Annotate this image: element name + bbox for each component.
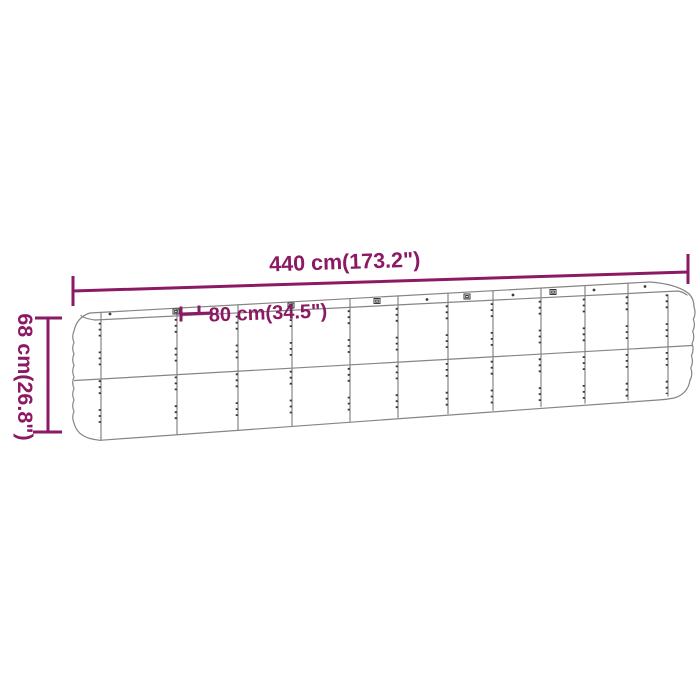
- bed-left-edge-corrugated: [73, 331, 74, 423]
- rim-clip-inner: [552, 291, 555, 293]
- bed-front-rim-edge: [95, 291, 687, 320]
- bed-right-edge-corrugated: [690, 307, 695, 380]
- rim-clip-inner: [376, 300, 379, 302]
- rim-clip-inner: [466, 296, 469, 298]
- diagram-svg: 440 cm(173.2") 80 cm(34.5") 68 cm(26.8"): [0, 0, 700, 700]
- rim-screw-dot: [512, 294, 515, 297]
- rim-clips: [109, 285, 647, 315]
- panel-seams: [101, 283, 668, 440]
- rim-clip: [374, 299, 380, 304]
- bed-left-cap: [74, 313, 100, 440]
- rim-clip: [464, 294, 470, 299]
- rim-screw-dot: [644, 285, 647, 288]
- rim-screw-dot: [593, 289, 596, 292]
- height-dimension-label: 68 cm(26.8"): [13, 313, 37, 440]
- rim-clip-inner: [175, 311, 178, 313]
- rim-screw-dot: [109, 313, 112, 316]
- rim-clip: [550, 290, 556, 295]
- product-dimension-diagram: 440 cm(173.2") 80 cm(34.5") 68 cm(26.8"): [0, 0, 700, 700]
- rim-screw-dot: [426, 298, 429, 301]
- bed-bottom-edge: [100, 400, 658, 440]
- bed-mid-band-seam: [75, 346, 693, 381]
- depth-dimension-label: 80 cm(34.5"): [208, 300, 327, 326]
- bed-right-cap: [650, 282, 694, 400]
- rim-clip: [173, 309, 179, 314]
- raised-bed-drawing: [73, 282, 695, 440]
- width-dimension-label: 440 cm(173.2"): [269, 248, 421, 277]
